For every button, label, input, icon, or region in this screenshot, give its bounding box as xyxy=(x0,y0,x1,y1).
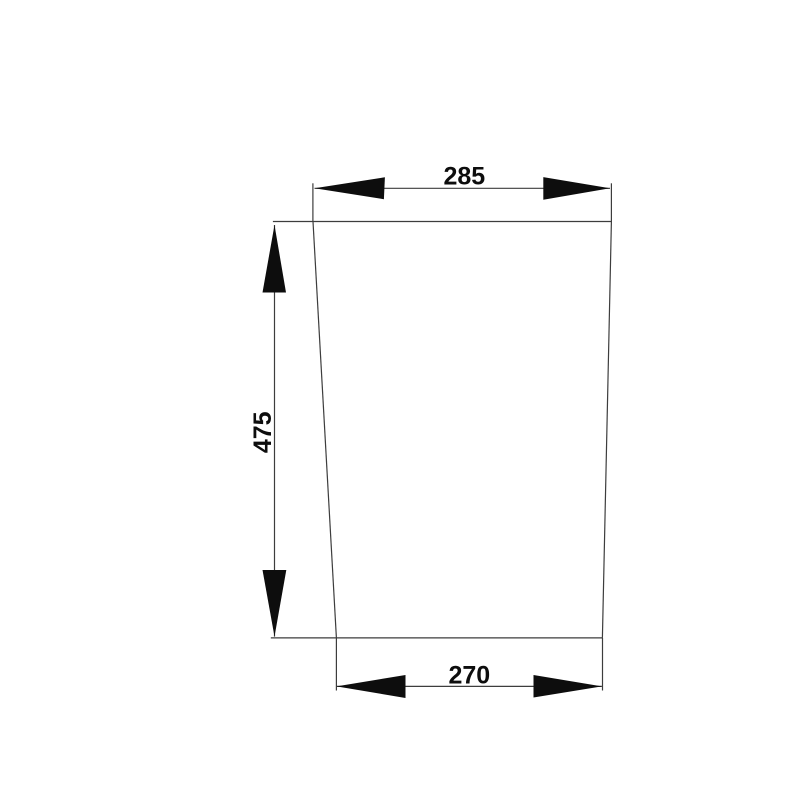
svg-text:270: 270 xyxy=(448,662,490,690)
svg-text:475: 475 xyxy=(249,411,277,453)
svg-text:285: 285 xyxy=(443,162,485,190)
